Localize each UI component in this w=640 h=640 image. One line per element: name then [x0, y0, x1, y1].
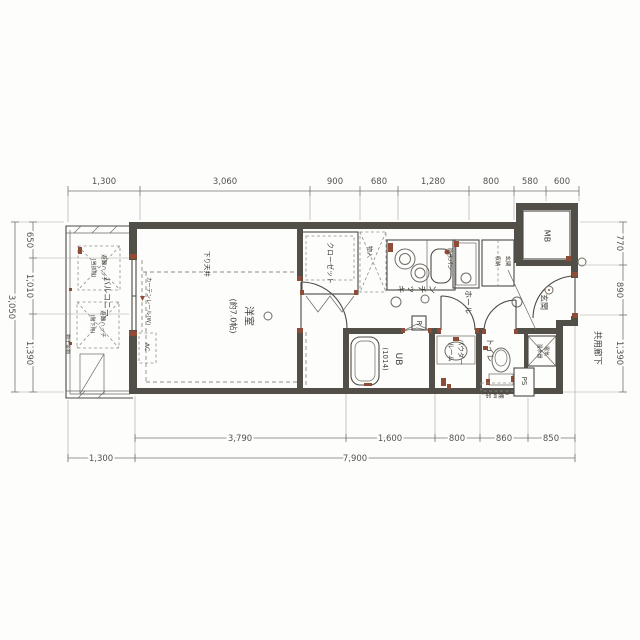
dim-bottom-overall-0: 1,300 [89, 454, 113, 464]
circle-symbol-dot [548, 289, 550, 291]
hatch-marker [78, 247, 82, 254]
mb-door-jamb [566, 256, 571, 261]
dim-top-2: 900 [327, 177, 343, 187]
dim-top-1: 3,060 [213, 177, 237, 187]
dim-bottom-detail-1: 1,600 [378, 434, 402, 444]
dim-top-6: 580 [522, 177, 538, 187]
closet-label: クローゼット [326, 242, 335, 284]
powder-room-area: パウダー ルーム [437, 336, 475, 389]
living-room-label: 洋室 [243, 306, 256, 326]
dim-right-2: 1,390 [614, 341, 624, 365]
door-jamb [514, 329, 518, 334]
door-jamb [475, 328, 479, 333]
faucet-icon [454, 241, 459, 247]
door-jamb [300, 290, 304, 295]
living-room-size-label: (約7.0帖) [229, 299, 239, 334]
ac-label: AC [143, 343, 151, 352]
balcony-divider-diagonal [80, 354, 104, 394]
dim-right-1: 890 [614, 282, 624, 298]
door-jamb [437, 328, 441, 333]
dim-top-7: 600 [554, 177, 570, 187]
fixture-marker [486, 379, 490, 385]
lowered-ceiling-label: 下り天井 [203, 251, 212, 278]
toilet-seat-icon [495, 350, 507, 366]
dim-bottom-detail-3: 860 [496, 434, 512, 444]
storage-label: 物入 [366, 246, 374, 258]
evac-hatch-lower-x [77, 302, 119, 348]
sliding-window-icon [132, 258, 136, 332]
hall-label: ホール [464, 290, 473, 314]
corridor-area: 共用廊下 [592, 331, 603, 366]
door-jamb [572, 272, 578, 277]
window-jamb [129, 254, 137, 259]
water-heater-label2: 温水器 [536, 343, 543, 358]
entrance-door-arc [533, 276, 575, 318]
fixture-marker [447, 384, 451, 389]
ceiling-light-icon [391, 297, 401, 307]
powder-room-label2: ルーム [447, 342, 455, 362]
door-jamb [297, 328, 303, 333]
dim-left-0: 650 [24, 232, 34, 248]
closet-area: クローゼット 物入 [300, 232, 386, 312]
living-room: 下り天井 洋室 (約7.0帖) [143, 251, 347, 388]
washer-pan-label: 防水パン [446, 248, 454, 271]
floor-plan-drawing: バルコニー 避難ハッチ (当該階) 避難ハッチ (階下用) 物干金物 [0, 0, 640, 640]
evac-hatch-lower-label: 避難ハッチ [99, 310, 107, 338]
laundry-hook-icon [69, 288, 72, 291]
dim-top-0: 1,300 [92, 177, 116, 187]
meter-box-label: MB [543, 230, 552, 242]
door-jamb [354, 290, 358, 295]
floor-plan-canvas: バルコニー 避難ハッチ (当該階) 避難ハッチ (階下用) 物干金物 [0, 0, 640, 640]
bathtub-inner [355, 341, 375, 381]
evac-hatch-lower-box [77, 302, 119, 348]
entrance-storage-label: 玄関 [504, 255, 512, 267]
dim-top-4: 1,280 [421, 177, 445, 187]
balcony-area: バルコニー 避難ハッチ (当該階) 避難ハッチ (階下用) 物干金物 [64, 226, 135, 398]
ceiling-light-icon [512, 297, 522, 307]
ceiling-light-icon [421, 295, 429, 303]
drain-icon [461, 273, 471, 283]
evac-hatch-upper-sublabel: (当該階) [90, 259, 97, 278]
door-jamb [401, 328, 405, 333]
closet-bifold-door-icon [306, 296, 354, 312]
entrance-storage-label2: 収納 [494, 255, 502, 267]
toilet-door-arc [484, 300, 516, 332]
kitchen-area: キッチン R [387, 240, 455, 330]
dim-left-2: 1,390 [24, 341, 34, 365]
powder-room-label: パウダー [457, 339, 466, 365]
stove-burner-icon [395, 249, 415, 269]
laundry-hardware-label: 物干金物 [64, 334, 71, 354]
curtain-rail-marker-icon [140, 296, 145, 301]
stove-burner-icon [411, 264, 429, 282]
dim-left-1: 1,010 [24, 274, 34, 298]
dim-bottom-detail-4: 850 [543, 434, 559, 444]
unit-bath-label: UB [393, 353, 403, 366]
evac-hatch-upper-label: 避難ハッチ [100, 254, 108, 282]
meter-box-area: MB [523, 211, 571, 261]
evac-hatch-lower-sublabel: (階下用) [89, 315, 96, 334]
dim-bottom-detail-0: 3,790 [228, 434, 252, 444]
unit-bath-size-label: (1014) [381, 347, 389, 371]
balcony-partition-top [66, 226, 133, 233]
ceiling-light-icon [264, 312, 272, 320]
washer-pan-inner [456, 243, 476, 285]
utility-area: 防水パン 玄関 収納 [446, 240, 514, 288]
lowered-ceiling-boundary [143, 272, 306, 388]
dim-bottom-overall-1: 7,900 [343, 454, 367, 464]
dim-right-0: 770 [614, 235, 624, 251]
storage-x [360, 232, 386, 292]
dim-bottom-detail-2: 800 [449, 434, 465, 444]
hanging-cupboard-label: (吊戸棚) [481, 393, 510, 400]
entrance-label: 玄関 [540, 294, 550, 310]
door-jamb [572, 313, 578, 318]
corridor-label: 共用廊下 [592, 331, 603, 366]
dim-top-3: 680 [371, 177, 387, 187]
dimensions-top: 1,300 3,060 900 680 1,280 800 580 600 [68, 177, 579, 222]
door-jamb [428, 328, 432, 333]
pipe-space-label: PS [520, 377, 528, 386]
washer-pan-box [453, 240, 479, 288]
evac-hatch-upper-x [78, 246, 120, 290]
water-heater-label: 電気 [543, 346, 550, 356]
room-door-arc [301, 282, 347, 328]
stove-burner-icon [400, 254, 411, 265]
door-jamb [482, 329, 486, 334]
toilet-label: トイレ [486, 338, 495, 362]
stove-burner-icon [415, 268, 425, 278]
water-heater-area: 電気 温水器 PS [514, 336, 556, 396]
dim-left-total: 3,050 [6, 295, 16, 319]
tub-faucet-icon [364, 383, 372, 386]
balcony-partition-bottom [66, 391, 133, 398]
fixture-marker [441, 378, 446, 386]
window-jamb [129, 331, 137, 336]
dim-top-5: 800 [483, 177, 499, 187]
stove-console [388, 243, 393, 252]
